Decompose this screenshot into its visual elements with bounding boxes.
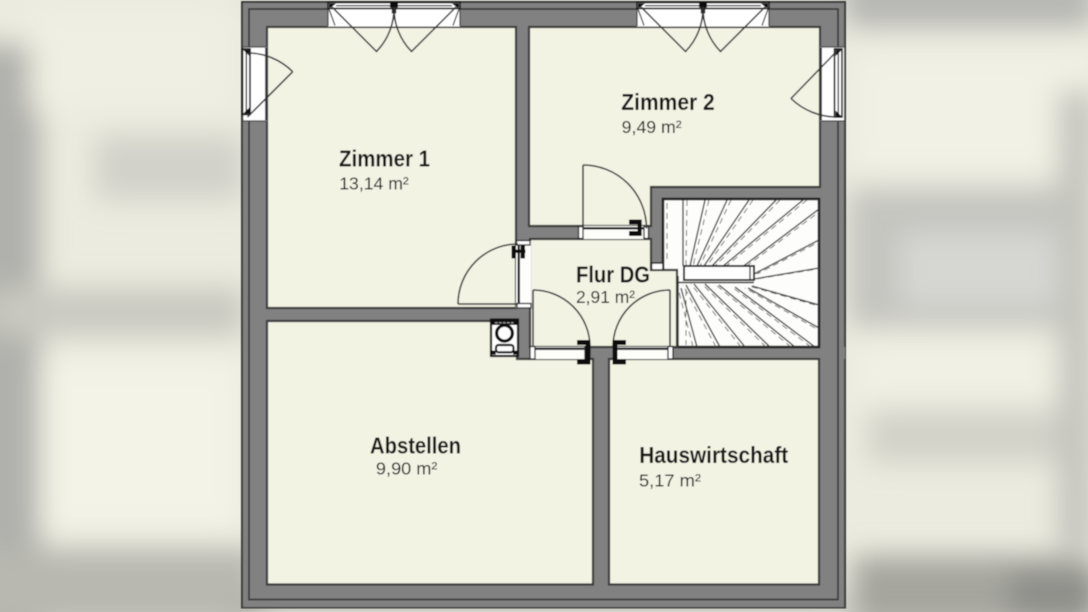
svg-text:9,49 m²: 9,49 m² xyxy=(622,117,682,137)
svg-text:Zimmer 2: Zimmer 2 xyxy=(621,89,715,115)
svg-text:9,90 m²: 9,90 m² xyxy=(376,459,438,479)
svg-text:Flur DG: Flur DG xyxy=(576,262,650,288)
svg-text:Abstellen: Abstellen xyxy=(370,433,461,459)
svg-text:Zimmer 1: Zimmer 1 xyxy=(339,146,430,172)
svg-text:5,17 m²: 5,17 m² xyxy=(639,471,701,491)
svg-text:13,14 m²: 13,14 m² xyxy=(339,174,409,194)
svg-text:2,91 m²: 2,91 m² xyxy=(576,287,635,307)
svg-text:Hauswirtschaft: Hauswirtschaft xyxy=(639,442,788,468)
